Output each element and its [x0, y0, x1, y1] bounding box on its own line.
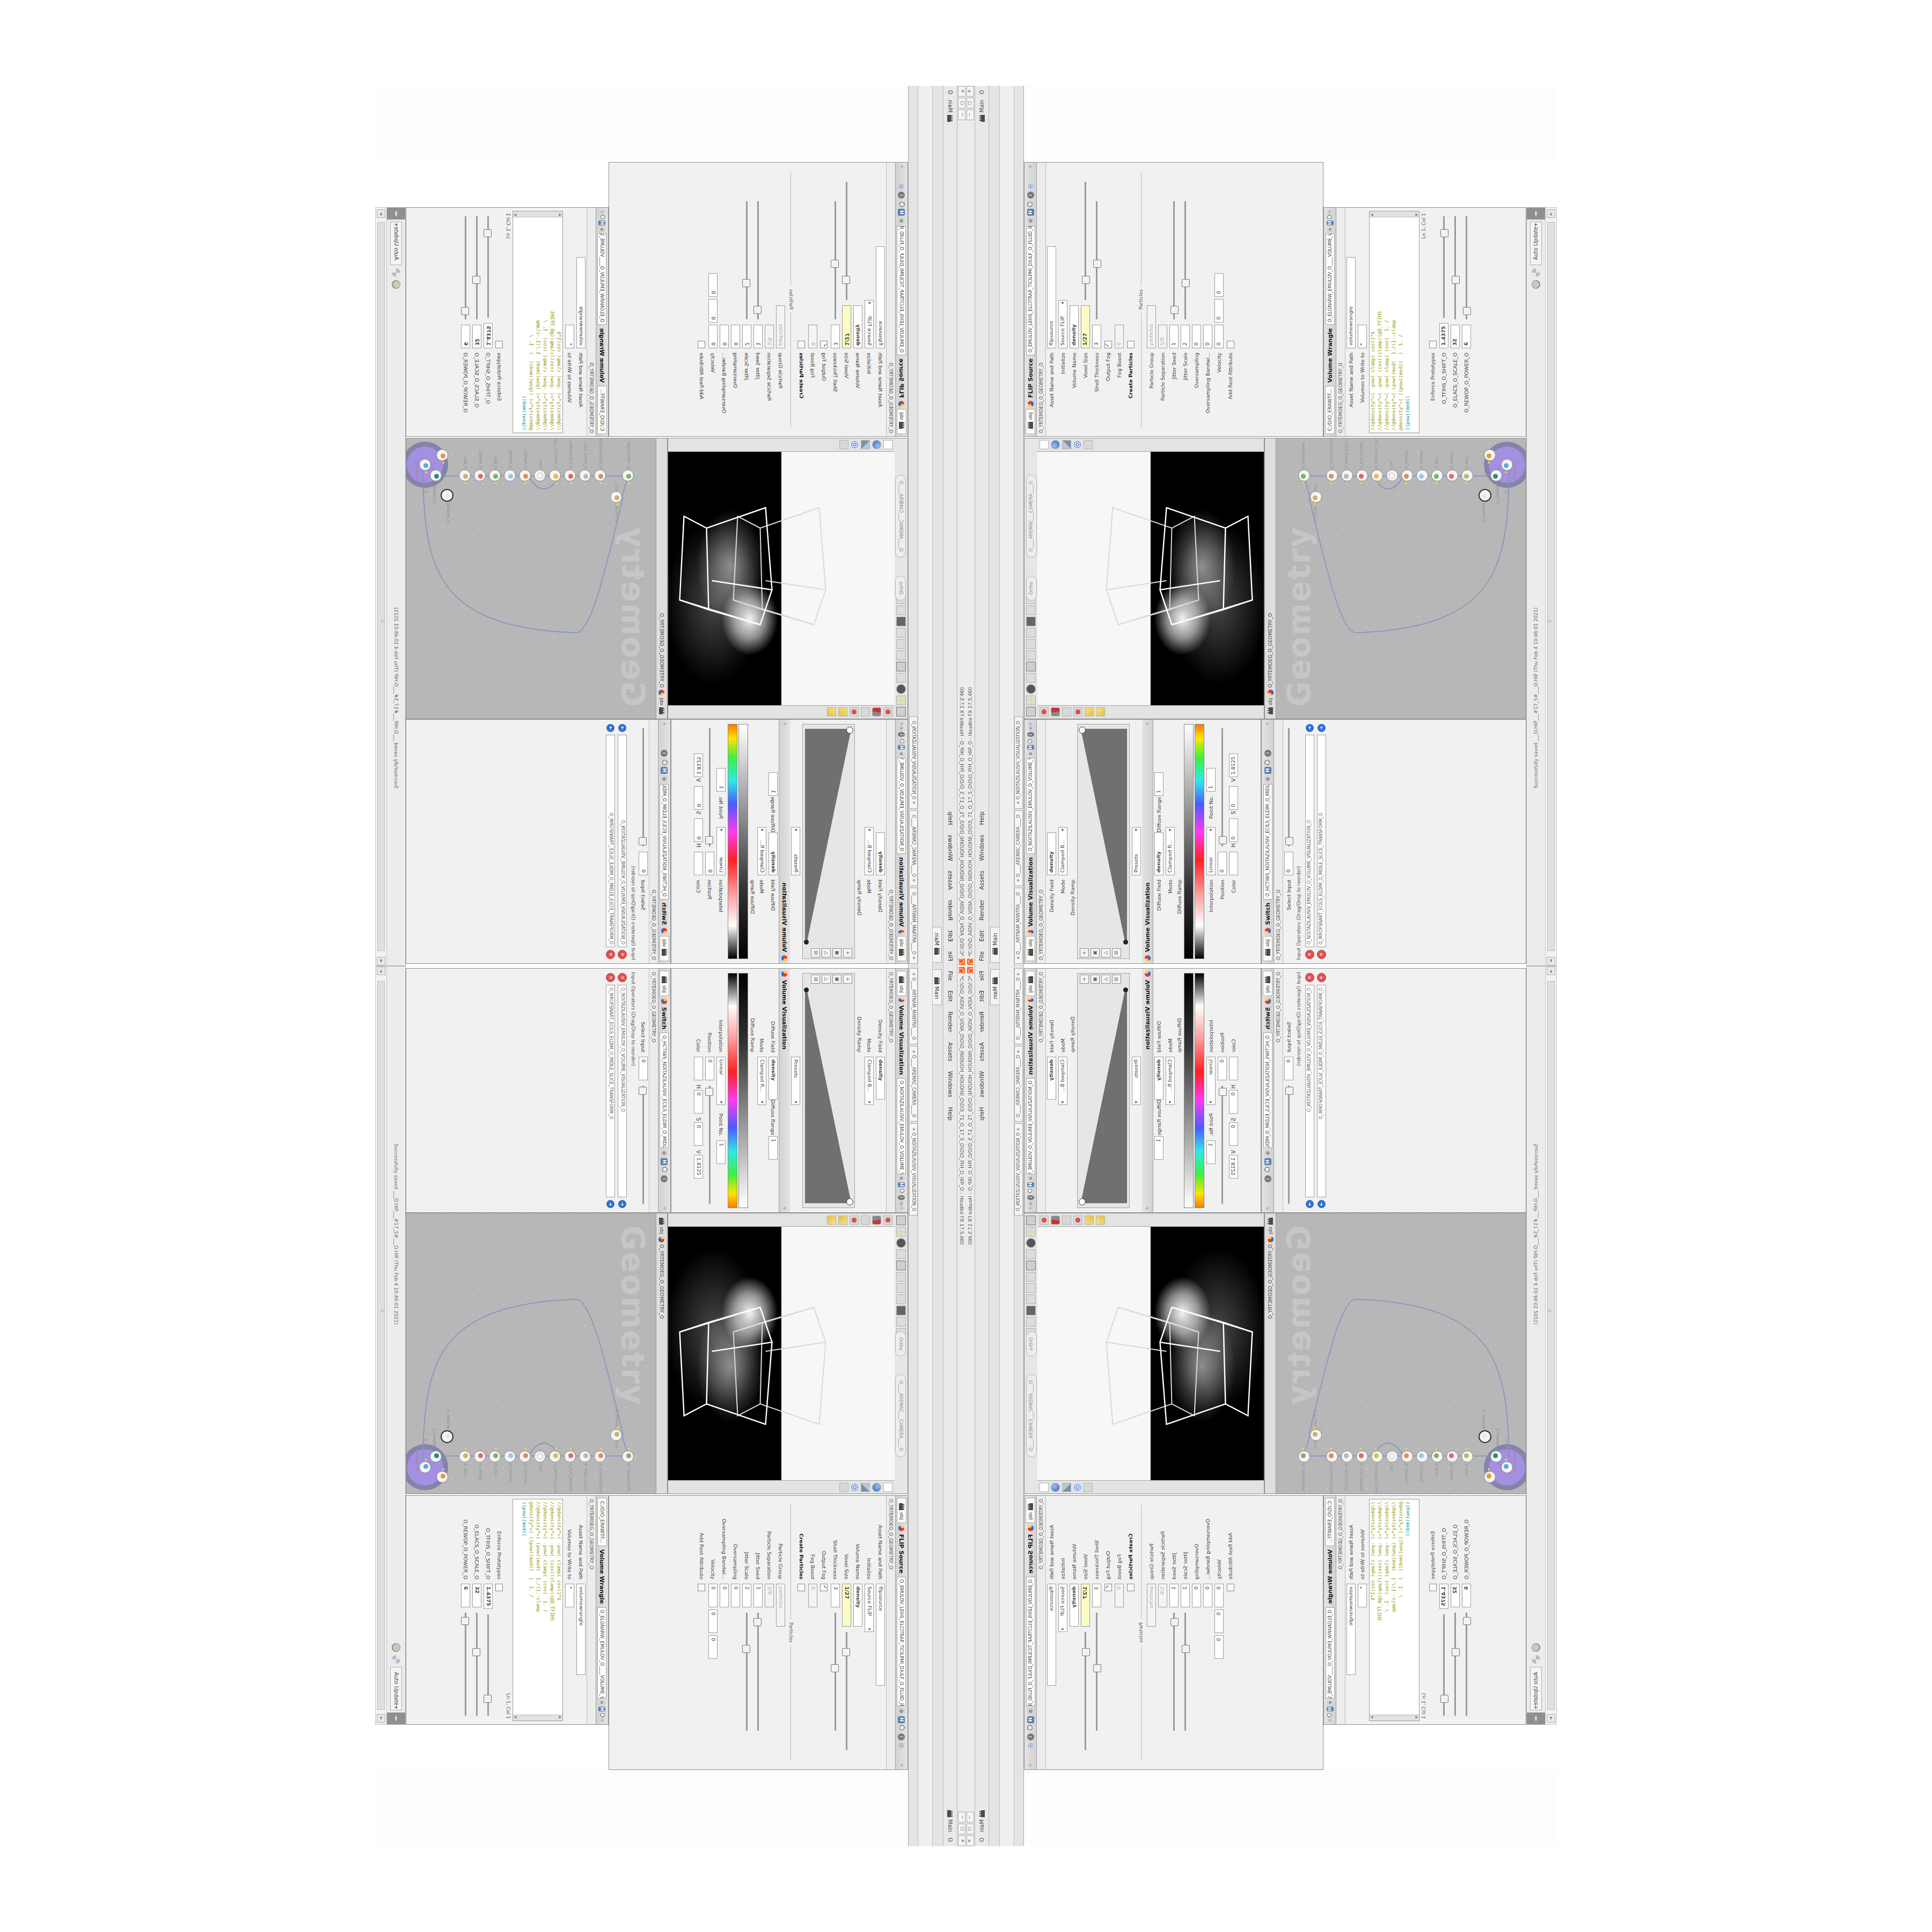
wrangle-path[interactable]: O_ELGNARW_EMULOV_O____VOLUME_WRANGLE___O [598, 233, 607, 325]
power-input[interactable]: 6 [461, 1584, 470, 1607]
snap-point-icon[interactable] [861, 708, 870, 717]
s-input[interactable]: 0 [1229, 786, 1238, 810]
camera-pill[interactable]: O____AREMAC___CAMERA____O [895, 1374, 906, 1457]
reorder-arrow-icon[interactable]: ➜ [1306, 724, 1314, 732]
node[interactable] [1326, 470, 1338, 481]
horizontal-scrollbar[interactable] [1547, 981, 1555, 1710]
oversampling-input[interactable]: 0 [731, 1584, 740, 1607]
ramp-del-button[interactable]: ☒ [811, 948, 820, 957]
snap-grid-icon[interactable] [872, 1216, 881, 1225]
volumes-write-input[interactable]: * [1358, 1584, 1367, 1607]
position-slider[interactable] [709, 728, 711, 846]
desktop-menu[interactable]: Main [979, 100, 985, 113]
select-input-field[interactable]: 0 [639, 1057, 648, 1080]
mode2-dropdown[interactable]: Clamped R... [757, 827, 766, 875]
pane-tab-camera[interactable]: ✳ O____AREMAC_CAMERA____O [1014, 1046, 1023, 1122]
ramp-box-button[interactable]: ▣ [832, 948, 841, 957]
density-ramp-editor[interactable]: + ▣ △ ☒ [1077, 724, 1130, 959]
display-options-icon[interactable] [1026, 1261, 1036, 1270]
velocity-y-input[interactable]: 0 [1214, 299, 1224, 323]
mode-dropdown[interactable]: Clamped B... [865, 827, 874, 875]
ramp-anchor-dot[interactable] [804, 987, 809, 992]
power-slider[interactable] [1466, 216, 1467, 319]
flip-obj-tab[interactable]: obj [897, 1498, 906, 1523]
sphere-tool-icon[interactable] [1051, 441, 1060, 450]
menu-assets[interactable]: Assets [978, 1037, 985, 1066]
select-input-field[interactable]: 0 [1284, 852, 1293, 875]
scroll-left-icon[interactable]: ◄ [1547, 967, 1555, 975]
position-slider[interactable] [1221, 1086, 1223, 1204]
snap-magnet-icon[interactable] [883, 708, 892, 717]
gear-icon[interactable] [898, 751, 905, 756]
radial-menu-icon[interactable] [1027, 1742, 1034, 1749]
node[interactable] [1341, 470, 1353, 481]
pushpin-icon[interactable] [839, 441, 848, 450]
velocity-x-input[interactable]: 0 [1214, 325, 1224, 348]
gear-icon[interactable] [1327, 227, 1334, 232]
volumes-write-input[interactable]: * [565, 1584, 574, 1607]
texture-icon[interactable] [896, 1272, 906, 1282]
magnifier-icon[interactable] [1327, 214, 1334, 219]
auto-update-dropdown[interactable]: Auto Update [390, 1667, 402, 1710]
handles-icon[interactable] [1026, 617, 1036, 626]
shift-input[interactable]: 1.4375 [1439, 1584, 1448, 1609]
delete-input-icon[interactable]: ✕ [618, 950, 627, 959]
power-input[interactable]: 6 [1462, 325, 1471, 348]
jitter-scale-input[interactable]: 2 [1181, 325, 1190, 348]
wrangle-file-tab[interactable]: C:/O/O_ERAWTF... [597, 386, 607, 434]
shelf-tab-main[interactable]: Main [990, 969, 999, 1005]
shelf-tool-icon[interactable] [827, 708, 836, 717]
node[interactable] [622, 470, 634, 481]
tripod-icon[interactable] [1026, 628, 1036, 638]
info-icon[interactable]: i [1027, 732, 1034, 737]
volumes-write-input[interactable]: * [565, 325, 574, 348]
initialize-dropdown[interactable]: Source FLIP [1058, 1584, 1067, 1632]
gear-icon[interactable] [599, 1700, 606, 1705]
ortho-pill[interactable]: Ortho [1026, 1331, 1037, 1356]
jitter-seed-input[interactable]: 1 [753, 1584, 763, 1607]
wrangle-file-tab[interactable]: C:/O/O_ERAWTF... [1325, 1498, 1335, 1546]
delete-input-icon[interactable]: ✕ [618, 973, 627, 982]
menu-assets[interactable]: Assets [947, 866, 954, 895]
v-input[interactable]: 1.8125 [1229, 753, 1238, 777]
enforce-prototypes-checkbox[interactable] [1429, 341, 1437, 348]
minimize-button[interactable]: − [967, 109, 974, 120]
grayscale-ramp-bar[interactable] [1184, 973, 1194, 1208]
network-breadcrumb[interactable]: O_YRTEMOEG_O_GEOMETRY_O [659, 1245, 664, 1319]
volume-name-input[interactable]: density [853, 1584, 862, 1627]
jitter-scale-slider[interactable] [746, 201, 748, 319]
add-rest-checkbox[interactable] [698, 1584, 706, 1591]
ramp-curve-icon[interactable] [1026, 1317, 1036, 1327]
quadview-icon[interactable] [896, 1227, 906, 1236]
input-operator-name[interactable]: O_NOITAZILAUSIV_EMULOV_O_VOLUME_VISUALIZ… [1305, 735, 1314, 947]
vex-code-editor[interactable]: //@density*=( -pow( clamp( cos(1*$ //@de… [513, 211, 563, 433]
texture-icon[interactable] [1026, 1272, 1036, 1282]
pane-arrows-icon[interactable]: ◄► [387, 1713, 405, 1724]
ramp-tri-button[interactable]: △ [1101, 948, 1110, 957]
node[interactable] [594, 470, 606, 481]
display-options-icon[interactable] [1026, 662, 1036, 671]
refresh-icon[interactable] [392, 1655, 400, 1664]
radial-menu-icon[interactable] [1027, 1202, 1034, 1206]
display-options-icon[interactable] [896, 1261, 906, 1270]
diffuse-ramp-bar[interactable] [1195, 973, 1204, 1208]
info-icon[interactable]: i [898, 1195, 905, 1200]
mode2-dropdown[interactable]: Clamped R... [1166, 827, 1175, 875]
tripod-icon[interactable] [896, 628, 906, 638]
node[interactable] [1356, 1451, 1368, 1462]
h-input[interactable]: 0 [1229, 1090, 1238, 1114]
node[interactable] [1431, 470, 1443, 481]
output-fog-checkbox[interactable] [1104, 1584, 1112, 1591]
pointno-input[interactable]: 1 [1206, 768, 1216, 792]
diffuse-field-input[interactable]: density [1154, 1057, 1163, 1100]
shell-thickness-input[interactable]: 3 [831, 325, 840, 348]
shift-slider[interactable] [1443, 216, 1445, 318]
interpolation-dropdown[interactable]: Linear [716, 1057, 726, 1105]
magnifier-icon[interactable] [898, 738, 905, 743]
pane-tab-camera[interactable]: ✳ O____AREMAC_CAMERA____O [1014, 810, 1023, 886]
shelf-tool-icon[interactable] [838, 1216, 847, 1225]
node[interactable] [579, 470, 591, 481]
volumes-write-input[interactable]: * [1358, 325, 1367, 348]
s-input[interactable]: 0 [694, 1122, 703, 1146]
ramp-anchor-dot[interactable] [1123, 987, 1128, 992]
delete-input-icon[interactable]: ✕ [1305, 973, 1314, 982]
node[interactable] [430, 470, 442, 481]
wrangle-file-tab[interactable]: C:/O/O_ERAWTF... [1325, 386, 1335, 434]
node[interactable] [1386, 1451, 1398, 1462]
select-input-slider[interactable] [642, 728, 644, 846]
quadview-icon[interactable] [1026, 696, 1036, 705]
viewport-render-area[interactable] [668, 1227, 895, 1480]
wireframe-box-icon[interactable] [1026, 639, 1036, 649]
grayscale-ramp-bar[interactable] [1184, 724, 1194, 959]
diffuse-range-input[interactable]: 1 [1154, 772, 1163, 796]
camera-view-icon[interactable] [896, 1249, 906, 1259]
ramp-anchor-dot[interactable] [1123, 940, 1128, 945]
node[interactable] [1416, 470, 1428, 481]
node[interactable] [1461, 470, 1473, 481]
density-ramp-editor[interactable]: + ▣ △ ☒ [802, 724, 855, 959]
density-field-input[interactable]: density [876, 832, 885, 875]
node[interactable] [1310, 1429, 1322, 1441]
oversampling-bw-input[interactable]: 0 [1203, 325, 1212, 348]
view-tool-icon[interactable] [896, 707, 906, 716]
wireframe-box-icon[interactable] [896, 639, 906, 649]
close-button[interactable]: ✕ [958, 1835, 965, 1846]
node[interactable] [1310, 491, 1322, 503]
snap-prim-icon[interactable] [850, 1216, 859, 1225]
gear-icon[interactable] [1027, 1708, 1034, 1715]
voxel-size-input[interactable]: 1/27 [1081, 1584, 1090, 1627]
node[interactable] [519, 470, 531, 481]
shade-mode-icon[interactable] [896, 684, 906, 694]
ortho-pill[interactable]: Ortho [1026, 576, 1037, 601]
switch-obj-tab[interactable]: obj [660, 936, 669, 961]
switch-path[interactable]: O_HCTIWS_NOITAZILAUSIV_ECILS_ELDIM_O_MID… [660, 1033, 669, 1148]
grayscale-ramp-bar[interactable] [738, 973, 748, 1208]
vex-code-editor[interactable]: //@density*=( -pow( clamp( cos(1*$ //@de… [1369, 1499, 1419, 1721]
oversampling-input[interactable]: 0 [1192, 325, 1201, 348]
h-input[interactable]: 0 [1229, 818, 1238, 842]
node[interactable] [622, 1451, 634, 1462]
density-field-input[interactable]: density [1047, 1057, 1056, 1100]
menu-edit[interactable]: Edit [978, 985, 985, 1006]
pointno-input[interactable]: 1 [1206, 1140, 1216, 1164]
node[interactable] [1446, 1451, 1458, 1462]
viewport-render-area[interactable] [668, 452, 895, 705]
presets-dropdown[interactable]: Presets [791, 1057, 800, 1105]
flip-path[interactable]: O_EMULOV_LEHS_ELCITRAP_TICILPMI_DIULF_O_… [897, 226, 906, 355]
scroll-right-icon[interactable]: ► [1547, 209, 1555, 218]
add-rest-checkbox[interactable] [1227, 1584, 1234, 1591]
jitter-seed-input[interactable]: 1 [753, 325, 763, 348]
target-rings-icon[interactable] [851, 1483, 859, 1491]
magnifier-icon[interactable] [1027, 1189, 1034, 1194]
ramp-del-button[interactable]: ☒ [811, 975, 820, 984]
input-operator-name[interactable]: O_MROFSNART_ECILS_ELDIM_O_MIDLE_SLICE_TR… [1317, 985, 1326, 1197]
particle-separation-input[interactable]: 1/9 [1158, 325, 1167, 348]
select-box-icon[interactable] [1040, 1483, 1049, 1492]
shell-thickness-input[interactable]: 3 [1092, 1584, 1101, 1607]
shift-slider[interactable] [1443, 1614, 1445, 1716]
power-slider[interactable] [1466, 1613, 1467, 1716]
magnifier-icon[interactable] [1027, 738, 1034, 743]
jitter-seed-slider[interactable] [1173, 201, 1175, 319]
jitter-scale-input[interactable]: 2 [742, 325, 751, 348]
camera-view-icon[interactable] [1026, 673, 1036, 683]
enforce-prototypes-checkbox[interactable] [496, 341, 503, 348]
camera-view-icon[interactable] [1026, 1249, 1036, 1259]
reorder-arrow-icon[interactable]: ➜ [1306, 1200, 1314, 1208]
code-scrollbar[interactable] [513, 1715, 562, 1721]
input-operator-name[interactable]: O_MROFSNART_ECILS_ELDIM_O_MIDLE_SLICE_TR… [606, 735, 616, 947]
select-input-slider[interactable] [1288, 1086, 1290, 1204]
position-input[interactable]: 0 [1218, 852, 1227, 875]
node[interactable] [1490, 1451, 1502, 1462]
code-scrollbar[interactable] [1370, 211, 1419, 217]
snap-point-icon[interactable] [1062, 708, 1071, 717]
node[interactable] [1386, 470, 1398, 481]
menu-file[interactable]: File [947, 966, 954, 985]
ramp-add-button[interactable]: + [843, 975, 852, 984]
tripod-icon[interactable] [1026, 1294, 1036, 1304]
pane-arrows-icon[interactable]: ◄► [1527, 208, 1545, 219]
network-breadcrumb[interactable]: O_YRTEMOEG_O_GEOMETRY_O [1268, 613, 1273, 687]
minimize-button[interactable]: − [958, 1812, 965, 1823]
density-field-input[interactable]: density [1047, 832, 1056, 875]
presets-dropdown[interactable]: Presets [1132, 1057, 1141, 1105]
voxel-size-input[interactable]: 1/27 [842, 305, 851, 348]
hand-icon[interactable] [392, 1643, 400, 1652]
node[interactable] [1298, 470, 1310, 481]
density-field-input[interactable]: density [876, 1057, 885, 1100]
delete-input-icon[interactable]: ✕ [606, 950, 616, 959]
asset-name-input[interactable]: flipsource [876, 246, 885, 348]
snap-prim-icon[interactable] [850, 708, 859, 717]
create-particles-checkbox[interactable] [798, 1584, 806, 1591]
node[interactable] [489, 1451, 501, 1462]
magnifier-icon[interactable] [661, 1167, 668, 1174]
pane-tab-camera[interactable]: ✳ O____AREMAC_CAMERA____O [909, 1046, 918, 1122]
hand-icon[interactable] [1532, 1643, 1540, 1652]
menu-edit[interactable]: Edit [947, 985, 954, 1006]
gear-icon[interactable] [898, 1708, 905, 1715]
camera-pill[interactable]: O____AREMAC___CAMERA____O [1026, 475, 1037, 558]
vex-code-editor[interactable]: //@density*=( -pow( clamp( cos(1*$ //@de… [1369, 211, 1419, 433]
volume-name-input[interactable]: density [1070, 1584, 1079, 1627]
radial-menu-icon[interactable] [898, 183, 905, 190]
view-tool-icon[interactable] [1026, 1216, 1036, 1225]
shelf-tab-main[interactable]: Main [933, 927, 942, 963]
gear-icon[interactable] [1327, 1700, 1334, 1705]
code-scrollbar[interactable] [1370, 1715, 1419, 1721]
node[interactable] [519, 1451, 531, 1462]
shelf-tool-icon[interactable] [838, 708, 847, 717]
pointno-input[interactable]: 1 [716, 768, 726, 792]
scale-slider[interactable] [1454, 1613, 1456, 1716]
jitter-scale-slider[interactable] [1184, 201, 1186, 319]
info-icon[interactable]: i [1264, 750, 1271, 757]
enforce-prototypes-checkbox[interactable] [496, 1584, 503, 1591]
menu-render[interactable]: Render [947, 895, 954, 925]
velocity-z-input[interactable]: 0 [1214, 1635, 1224, 1659]
node[interactable] [594, 1451, 606, 1462]
info-icon[interactable]: i [1027, 192, 1034, 199]
fog-boost-input[interactable]: 0 [1115, 325, 1124, 348]
v-input[interactable]: 1.8125 [694, 1155, 703, 1179]
s-input[interactable]: 0 [694, 786, 703, 810]
camera-view-icon[interactable] [896, 673, 906, 683]
code-scrollbar[interactable] [513, 211, 562, 217]
shade-mode-icon[interactable] [1026, 684, 1036, 694]
presets-dropdown[interactable]: Presets [1132, 827, 1141, 875]
volume-name-input[interactable]: density [853, 305, 862, 348]
mode-dropdown[interactable]: Clamped B... [865, 1057, 874, 1105]
scale-input[interactable]: 32 [472, 1584, 481, 1607]
mode2-dropdown[interactable]: Clamped R... [757, 1057, 766, 1105]
initialize-dropdown[interactable]: Source FLIP [865, 1584, 874, 1632]
volviz-obj-tab[interactable]: obj [1026, 971, 1035, 996]
select-input-field[interactable]: 0 [1284, 1057, 1293, 1080]
voxel-size-slider[interactable] [1085, 1632, 1086, 1750]
node[interactable] [610, 491, 622, 503]
hand-icon[interactable] [392, 280, 400, 289]
select-input-field[interactable]: 0 [639, 852, 648, 875]
selected-node[interactable] [1501, 459, 1513, 471]
radial-menu-icon[interactable] [1027, 183, 1034, 190]
fog-boost-input[interactable]: 0 [808, 325, 817, 348]
sphere-tool-icon[interactable] [1051, 1483, 1060, 1492]
node[interactable] [564, 1451, 576, 1462]
menu-windows[interactable]: Windows [947, 1066, 954, 1102]
ramp-add-button[interactable]: + [843, 948, 852, 957]
velocity-x-input[interactable]: 0 [708, 1584, 718, 1607]
selected-node[interactable] [1501, 1461, 1513, 1473]
velocity-y-input[interactable]: 0 [1214, 1609, 1224, 1633]
delete-input-icon[interactable]: ✕ [606, 973, 616, 982]
camera-pill[interactable]: O____AREMAC___CAMERA____O [895, 475, 906, 558]
scale-input[interactable]: 32 [472, 325, 481, 348]
initialize-dropdown[interactable]: Source FLIP [865, 300, 874, 348]
wrangle-path[interactable]: O_ELGNARW_EMULOV_O____VOLUME_WRANGLE___O [598, 1607, 607, 1699]
menu-assets[interactable]: Assets [947, 1037, 954, 1066]
shell-thickness-slider[interactable] [1096, 201, 1097, 319]
magnifier-icon[interactable] [1264, 758, 1271, 765]
node[interactable] [430, 1451, 442, 1462]
auto-update-dropdown[interactable]: Auto Update [1530, 222, 1542, 265]
gear-icon[interactable] [1264, 1150, 1271, 1157]
node[interactable] [1371, 1451, 1383, 1462]
asset-name-input[interactable]: flipsource [1047, 1584, 1056, 1686]
node[interactable] [1446, 470, 1458, 481]
shift-input[interactable]: 1.4375 [484, 1584, 493, 1609]
menu-assets[interactable]: Assets [978, 866, 985, 895]
shell-thickness-input[interactable]: 3 [831, 1584, 840, 1607]
shell-thickness-slider[interactable] [1096, 1613, 1097, 1731]
wrangle-asset-input[interactable]: volumewrangle [576, 257, 586, 348]
node[interactable] [436, 1471, 448, 1483]
node[interactable] [1298, 1451, 1310, 1462]
window-titlebar[interactable]: *C:\O\O_AIDIV_O_VIDIA_O\O\O_INIDUOH_HOUD… [966, 86, 975, 966]
minimize-button[interactable]: − [958, 109, 965, 120]
menu-windows[interactable]: Windows [947, 830, 954, 866]
node[interactable] [504, 1451, 516, 1462]
interpolation-dropdown[interactable]: Linear [1206, 1057, 1216, 1105]
horizontal-scrollbar[interactable] [1547, 222, 1555, 951]
volviz-obj-tab[interactable]: obj [1026, 936, 1035, 961]
magnifier-icon[interactable] [898, 200, 905, 207]
handles-icon[interactable] [896, 1306, 906, 1315]
pushpin-icon[interactable] [1084, 441, 1093, 450]
flip-obj-tab[interactable]: obj [1026, 409, 1035, 434]
flip-path[interactable]: O_EMULOV_LEHS_ELCITRAP_TICILPMI_DIULF_O_… [897, 1577, 906, 1706]
gear-icon[interactable] [599, 227, 606, 232]
delete-input-icon[interactable]: ✕ [1305, 950, 1314, 959]
snap-prim-icon[interactable] [1073, 1216, 1082, 1225]
ramp-tri-button[interactable]: △ [1101, 975, 1110, 984]
reorder-arrow-icon[interactable]: ➜ [1318, 724, 1326, 732]
close-button[interactable]: ✕ [958, 86, 965, 97]
select-box-icon[interactable] [1040, 441, 1049, 450]
diffuse-ramp-bar[interactable] [728, 973, 737, 1208]
node[interactable] [474, 470, 486, 481]
jitter-seed-slider[interactable] [757, 201, 759, 319]
node[interactable] [1431, 1451, 1443, 1462]
position-input[interactable]: 0 [705, 852, 714, 875]
flip-obj-tab[interactable]: obj [897, 409, 906, 434]
refresh-icon[interactable] [392, 268, 400, 277]
node[interactable] [1326, 1451, 1338, 1462]
pushpin-icon[interactable] [839, 1483, 848, 1492]
jitter-scale-input[interactable]: 2 [742, 1584, 751, 1607]
ramp-handle[interactable] [1079, 1198, 1086, 1205]
ramp-curve-icon[interactable] [896, 605, 906, 615]
presets-dropdown[interactable]: Presets [791, 827, 800, 875]
minimize-button[interactable]: − [967, 1812, 974, 1823]
quadview-icon[interactable] [1026, 1227, 1036, 1236]
ramp-curve-icon[interactable] [1026, 605, 1036, 615]
velocity-x-input[interactable]: 0 [708, 325, 718, 348]
output-fog-checkbox[interactable] [1104, 341, 1112, 348]
snap-point-icon[interactable] [861, 1216, 870, 1225]
switch-obj-tab[interactable]: obj [1263, 971, 1272, 996]
h-input[interactable]: 0 [694, 1090, 703, 1114]
cube-tool-icon[interactable] [861, 1483, 870, 1492]
